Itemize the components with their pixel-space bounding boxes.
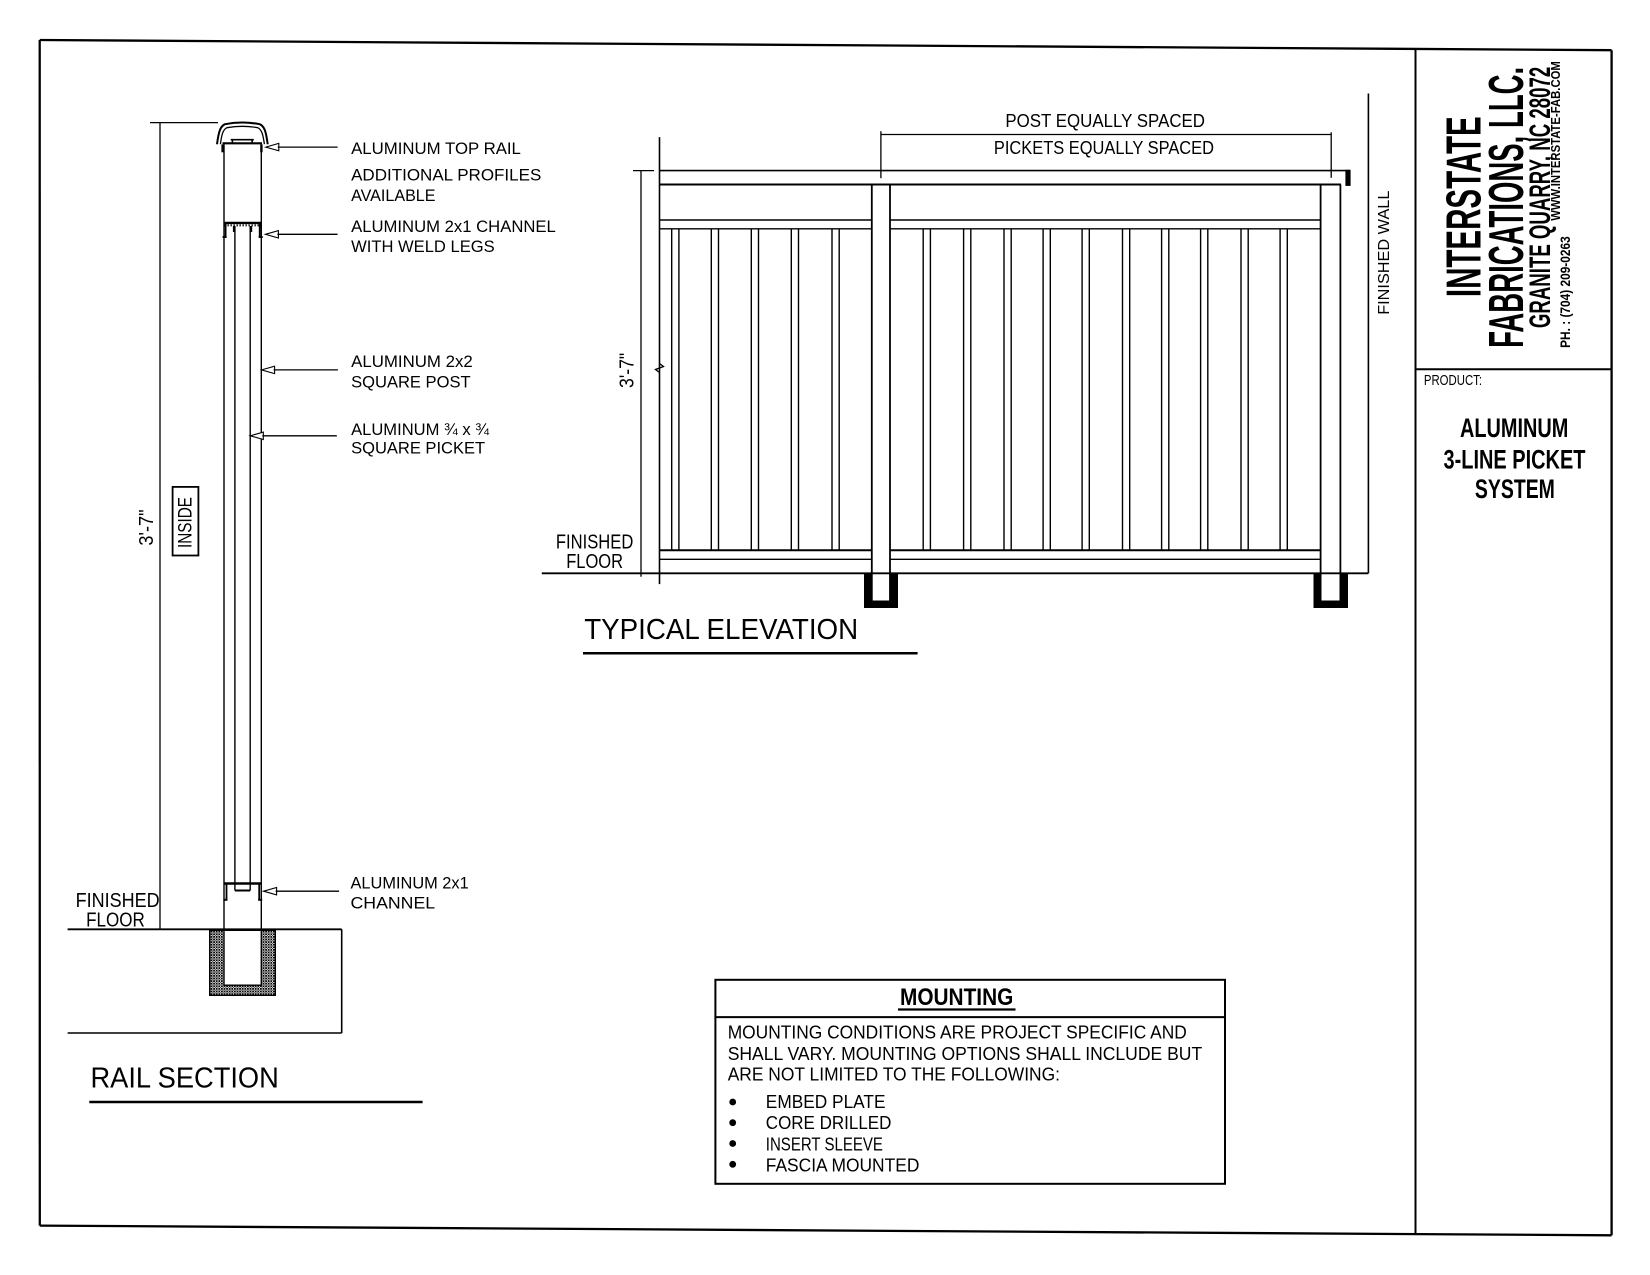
svg-text:SHALL VARY. MOUNTING OPTIONS S: SHALL VARY. MOUNTING OPTIONS SHALL INCLU… xyxy=(728,1044,1202,1064)
svg-text:INSERT SLEEVE: INSERT SLEEVE xyxy=(766,1134,883,1154)
svg-text:3'-7": 3'-7" xyxy=(616,353,638,388)
svg-text:FASCIA MOUNTED: FASCIA MOUNTED xyxy=(766,1156,920,1176)
svg-text:CHANNEL: CHANNEL xyxy=(351,893,436,912)
svg-text:MOUNTING: MOUNTING xyxy=(900,984,1013,1011)
svg-text:PRODUCT:: PRODUCT: xyxy=(1424,372,1482,389)
svg-text:ALUMINUM ¾ x ¾: ALUMINUM ¾ x ¾ xyxy=(351,420,490,439)
svg-text:FLOOR: FLOOR xyxy=(86,910,145,932)
svg-text:CORE DRILLED: CORE DRILLED xyxy=(766,1113,892,1133)
svg-text:MOUNTING CONDITIONS ARE PROJEC: MOUNTING CONDITIONS ARE PROJECT SPECIFIC… xyxy=(728,1023,1187,1043)
svg-text:PICKETS EQUALLY SPACED: PICKETS EQUALLY SPACED xyxy=(994,138,1214,158)
svg-text:PH. : (704) 209-0263: PH. : (704) 209-0263 xyxy=(1557,236,1573,348)
svg-text:ADDITIONAL PROFILES: ADDITIONAL PROFILES xyxy=(351,165,541,184)
svg-text:3'-7": 3'-7" xyxy=(136,509,158,545)
svg-text:SQUARE POST: SQUARE POST xyxy=(351,372,471,391)
svg-text:ALUMINUM: ALUMINUM xyxy=(1460,413,1568,443)
svg-text:FLOOR: FLOOR xyxy=(566,551,623,573)
svg-text:WWW.INTERSTATE-FAB.COM: WWW.INTERSTATE-FAB.COM xyxy=(1549,61,1563,221)
svg-text:POST EQUALLY SPACED: POST EQUALLY SPACED xyxy=(1005,111,1205,131)
svg-text:EMBED PLATE: EMBED PLATE xyxy=(766,1092,886,1112)
svg-text:SYSTEM: SYSTEM xyxy=(1475,474,1555,504)
svg-text:INSIDE: INSIDE xyxy=(176,497,197,548)
svg-text:ALUMINUM 2x1: ALUMINUM 2x1 xyxy=(351,873,469,892)
svg-text:ARE NOT LIMITED TO THE FOLLOWI: ARE NOT LIMITED TO THE FOLLOWING: xyxy=(728,1064,1060,1084)
svg-text:WITH WELD LEGS: WITH WELD LEGS xyxy=(351,237,495,256)
svg-text:SQUARE PICKET: SQUARE PICKET xyxy=(351,438,485,457)
svg-text:AVAILABLE: AVAILABLE xyxy=(351,186,435,205)
svg-text:FINISHED WALL: FINISHED WALL xyxy=(1376,190,1393,314)
svg-text:ALUMINUM 2x2: ALUMINUM 2x2 xyxy=(351,352,473,371)
svg-text:ALUMINUM 2x1 CHANNEL: ALUMINUM 2x1 CHANNEL xyxy=(351,217,556,236)
svg-text:3-LINE PICKET: 3-LINE PICKET xyxy=(1444,444,1586,474)
svg-text:ALUMINUM TOP RAIL: ALUMINUM TOP RAIL xyxy=(351,139,521,158)
svg-text:TYPICAL ELEVATION: TYPICAL ELEVATION xyxy=(584,614,858,646)
svg-text:RAIL SECTION: RAIL SECTION xyxy=(91,1062,279,1094)
